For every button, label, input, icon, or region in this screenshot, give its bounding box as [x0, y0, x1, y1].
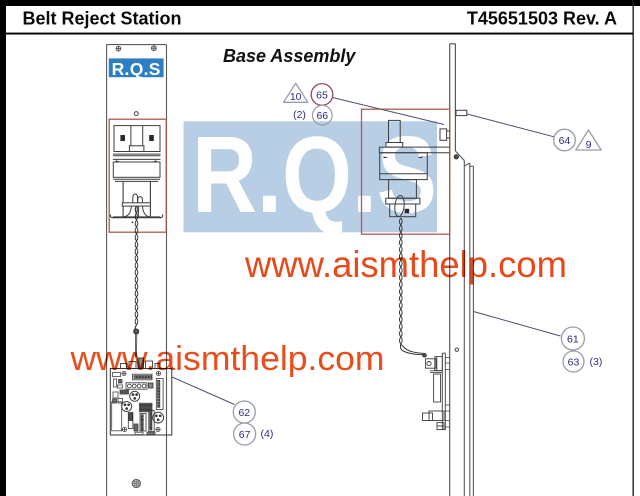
svg-text:R.Q.S: R.Q.S — [112, 59, 161, 79]
svg-text:10: 10 — [290, 91, 302, 103]
svg-text:9: 9 — [586, 139, 592, 151]
svg-text:65: 65 — [316, 90, 328, 102]
svg-text:Belt Reject Station: Belt Reject Station — [23, 8, 182, 28]
svg-text:67: 67 — [239, 429, 251, 441]
svg-text:63: 63 — [568, 357, 580, 369]
svg-text:66: 66 — [316, 110, 328, 122]
svg-text:T45651503 Rev. A: T45651503 Rev. A — [467, 8, 617, 28]
svg-text:62: 62 — [238, 407, 250, 419]
svg-text:www.aismthelp.com: www.aismthelp.com — [244, 243, 567, 285]
svg-text:(3): (3) — [590, 356, 603, 368]
svg-text:61: 61 — [567, 334, 579, 346]
svg-text:64: 64 — [559, 135, 571, 147]
svg-text:(4): (4) — [261, 428, 274, 440]
svg-text:www.aismthelp.com: www.aismthelp.com — [69, 340, 384, 378]
svg-text:(2): (2) — [293, 109, 306, 121]
svg-text:Base Assembly: Base Assembly — [223, 46, 356, 66]
